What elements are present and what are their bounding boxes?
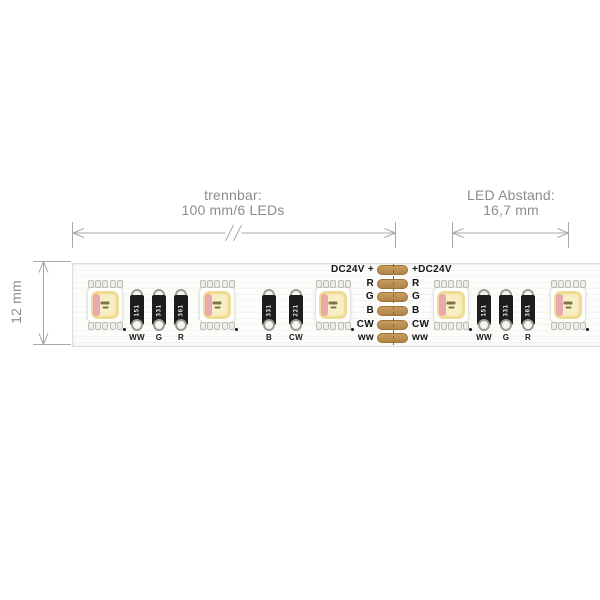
resistor-value: 331 (503, 304, 510, 316)
led-pin-icon (214, 322, 220, 330)
polarity-dot-icon (586, 328, 589, 331)
led-pin-icon (558, 280, 564, 288)
resistor-b: 331 B (261, 289, 277, 331)
solder-pad-ww (377, 333, 408, 343)
resistor-value: 331 (156, 304, 163, 316)
pad-label-left-dc24v: DC24V + (288, 264, 374, 276)
cut-length-line1: trennbar: (133, 188, 333, 203)
led-pin-icon (102, 280, 108, 288)
solder-pad-g (377, 292, 408, 302)
chip-marks (101, 302, 110, 309)
resistor-r: 361 R (520, 289, 536, 331)
led-module-2 (199, 287, 235, 323)
rgb-die (556, 294, 563, 316)
resistor-label: R (512, 333, 544, 342)
led-chip (203, 291, 231, 319)
led-pin-icon (565, 280, 571, 288)
led-pin-icon (229, 280, 235, 288)
led-pin-icon (102, 322, 108, 330)
pad-label-left-g: G (288, 291, 374, 303)
resistor-cap-icon (131, 319, 143, 331)
led-pin-icon (95, 322, 101, 330)
resistor-g: 331 G (498, 289, 514, 331)
led-pin-icon (200, 280, 206, 288)
arrow-right-icon (385, 229, 396, 238)
led-module-1 (87, 287, 123, 323)
resistor-label: R (165, 333, 197, 342)
pad-label-left-r: R (288, 278, 374, 290)
pad-label-right-ww: ww (412, 332, 498, 344)
pad-label-right-dc24v: +DC24V (412, 264, 498, 276)
solder-pad-b (377, 306, 408, 316)
led-pin-icon (551, 280, 557, 288)
led-pin-icon (558, 322, 564, 330)
led-pin-icon (88, 322, 94, 330)
resistor-value: 361 (178, 304, 185, 316)
led-pin-icon (222, 322, 228, 330)
led-chip (91, 291, 119, 319)
resistor-value: 151 (134, 304, 141, 316)
solder-pad-r (377, 279, 408, 289)
led-pin-icon (207, 322, 213, 330)
resistor-g: 331 G (151, 289, 167, 331)
led-pin-icon (580, 280, 586, 288)
rgb-die (205, 294, 212, 316)
resistor-cap-icon (175, 319, 187, 331)
led-pin-icon (88, 280, 94, 288)
led-pin-icon (573, 322, 579, 330)
arrow-right-icon (558, 229, 569, 238)
strip-height-label: 12 mm (8, 280, 24, 324)
arrow-left-icon (453, 229, 464, 238)
resistor-value: 361 (525, 304, 532, 316)
strip-height-dimension (33, 262, 71, 345)
rgb-die (93, 294, 100, 316)
resistor-cap-icon (522, 319, 534, 331)
pad-label-left-cw: CW (288, 319, 374, 331)
cut-length-label: trennbar: 100 mm/6 LEDs (133, 188, 333, 218)
led-spacing-dimension (453, 222, 569, 248)
led-pin-icon (95, 280, 101, 288)
arrow-left-icon (73, 229, 84, 238)
chip-marks (564, 302, 573, 309)
break-symbol-icon (226, 225, 242, 241)
pad-label-left-ww: ww (288, 332, 374, 344)
arrow-down-icon (39, 334, 48, 345)
resistor-cap-icon (153, 319, 165, 331)
resistor-cap-icon (263, 319, 275, 331)
led-pin-icon (573, 280, 579, 288)
led-strip-diagram: trennbar: 100 mm/6 LEDs LED Abstand: 16,… (0, 0, 600, 600)
cut-length-dimension (73, 222, 396, 248)
led-chip (554, 291, 582, 319)
resistor-ww: 151 WW (129, 289, 145, 331)
pad-label-right-cw: CW (412, 319, 498, 331)
led-pin-icon (200, 322, 206, 330)
led-pin-icon (110, 280, 116, 288)
led-module-5 (550, 287, 586, 323)
led-pin-icon (214, 280, 220, 288)
led-pin-icon (565, 322, 571, 330)
cut-length-line2: 100 mm/6 LEDs (133, 203, 333, 218)
resistor-r: 361 R (173, 289, 189, 331)
polarity-dot-icon (123, 328, 126, 331)
polarity-dot-icon (235, 328, 238, 331)
led-pin-icon (117, 280, 123, 288)
pad-label-right-b: B (412, 305, 498, 317)
led-spacing-line1: LED Abstand: (411, 188, 600, 203)
arrow-up-icon (39, 262, 48, 273)
led-spacing-line2: 16,7 mm (411, 203, 600, 218)
led-pin-icon (110, 322, 116, 330)
chip-marks (213, 302, 222, 309)
solder-pad-dc24v (377, 265, 408, 275)
led-pin-icon (222, 280, 228, 288)
pad-label-right-r: R (412, 278, 498, 290)
led-pin-icon (207, 280, 213, 288)
led-pin-icon (551, 322, 557, 330)
solder-pad-cw (377, 320, 408, 330)
pad-label-right-g: G (412, 291, 498, 303)
led-spacing-label: LED Abstand: 16,7 mm (411, 188, 600, 218)
resistor-cap-icon (500, 319, 512, 331)
resistor-value: 331 (266, 304, 273, 316)
pad-label-left-b: B (288, 305, 374, 317)
